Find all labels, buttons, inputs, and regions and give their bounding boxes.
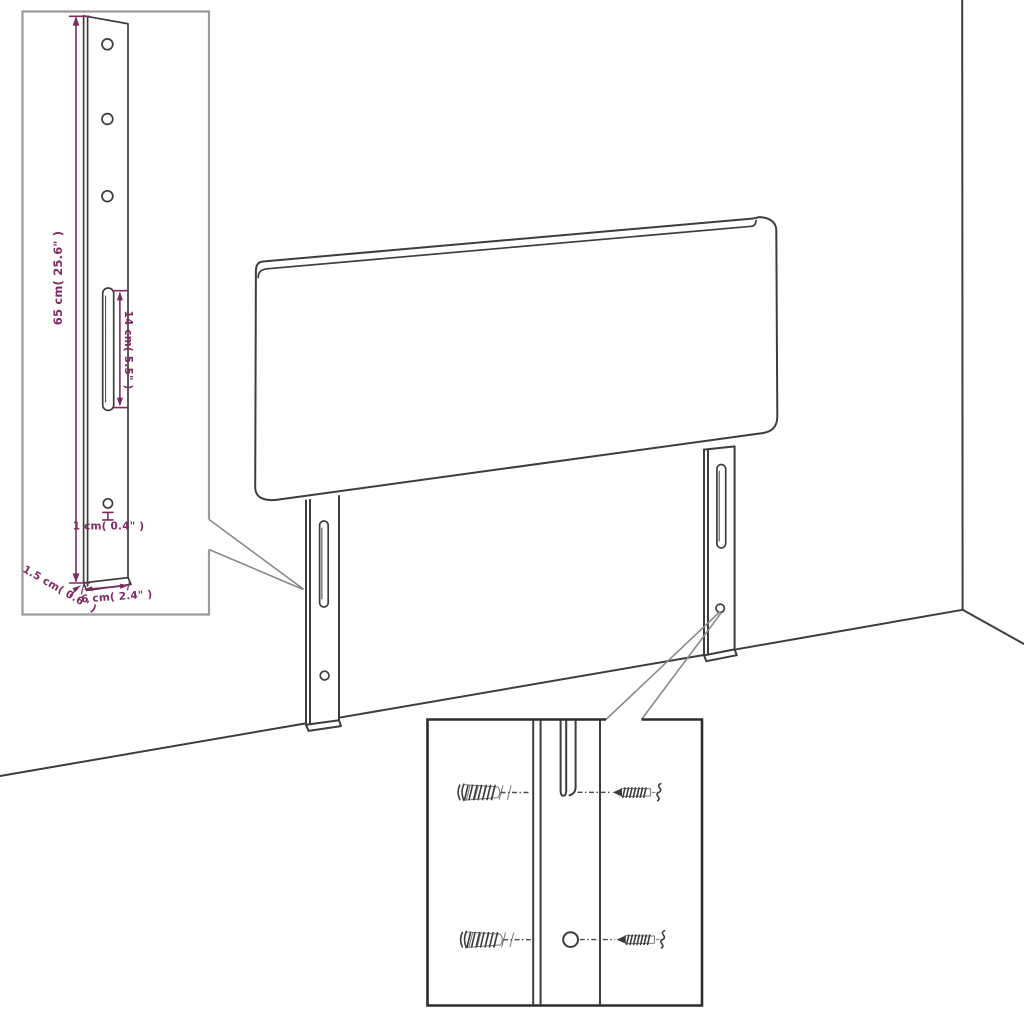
mounting-detail-inset (428, 720, 703, 1006)
alignment-dashed-lines (501, 792, 616, 939)
bracket-outline (84, 16, 131, 591)
left-mounting-leg (306, 496, 341, 731)
bracket-small-hole (103, 499, 112, 508)
left-leg-edges (306, 496, 339, 725)
right-leg-slot (717, 465, 726, 549)
floor-line-left (0, 610, 963, 776)
headboard-dimension-diagram: 65 cm( 25.6" ) 14 cm( 5.5" ) 1 cm( 0.4" … (0, 0, 1024, 1024)
headboard-outline (255, 217, 777, 500)
headboard-panel (255, 217, 777, 500)
dimension-14cm: 14 cm( 5.5" ) (113, 291, 134, 408)
screw-lower (617, 931, 665, 948)
room-corner (0, 0, 1024, 776)
bracket-hole-2 (102, 114, 113, 125)
bracket-hole-3 (102, 191, 113, 202)
dimension-label-hole-size: 1 cm( 0.4" ) (73, 521, 145, 533)
mounting-inset-slot (561, 721, 576, 796)
mounting-inset-hole (563, 932, 578, 947)
floor-line-right (963, 610, 1024, 644)
headboard-top-edge-inner-line (258, 221, 756, 278)
bracket-slot (103, 288, 114, 410)
left-leg-bottom-face (306, 720, 341, 731)
dimension-label-leg-height: 65 cm( 25.6" ) (51, 231, 65, 326)
inset-leader-lines (209, 520, 722, 720)
screw-upper (613, 784, 661, 801)
left-leg-slot (320, 521, 329, 607)
right-leg-hole (716, 604, 724, 612)
bracket-detail-inset: 65 cm( 25.6" ) 14 cm( 5.5" ) 1 cm( 0.4" … (20, 12, 209, 616)
diagram-canvas: 65 cm( 25.6" ) 14 cm( 5.5" ) 1 cm( 0.4" … (0, 0, 1024, 1024)
mounting-inset-box (428, 720, 703, 1006)
bracket-inset-leader-lines (209, 520, 304, 590)
left-leg-hole (320, 671, 329, 680)
dimension-label-slot-length: 14 cm( 5.5" ) (122, 310, 134, 389)
mounting-inset-leg-strip (533, 721, 600, 1005)
bracket-hole-1 (102, 39, 113, 50)
